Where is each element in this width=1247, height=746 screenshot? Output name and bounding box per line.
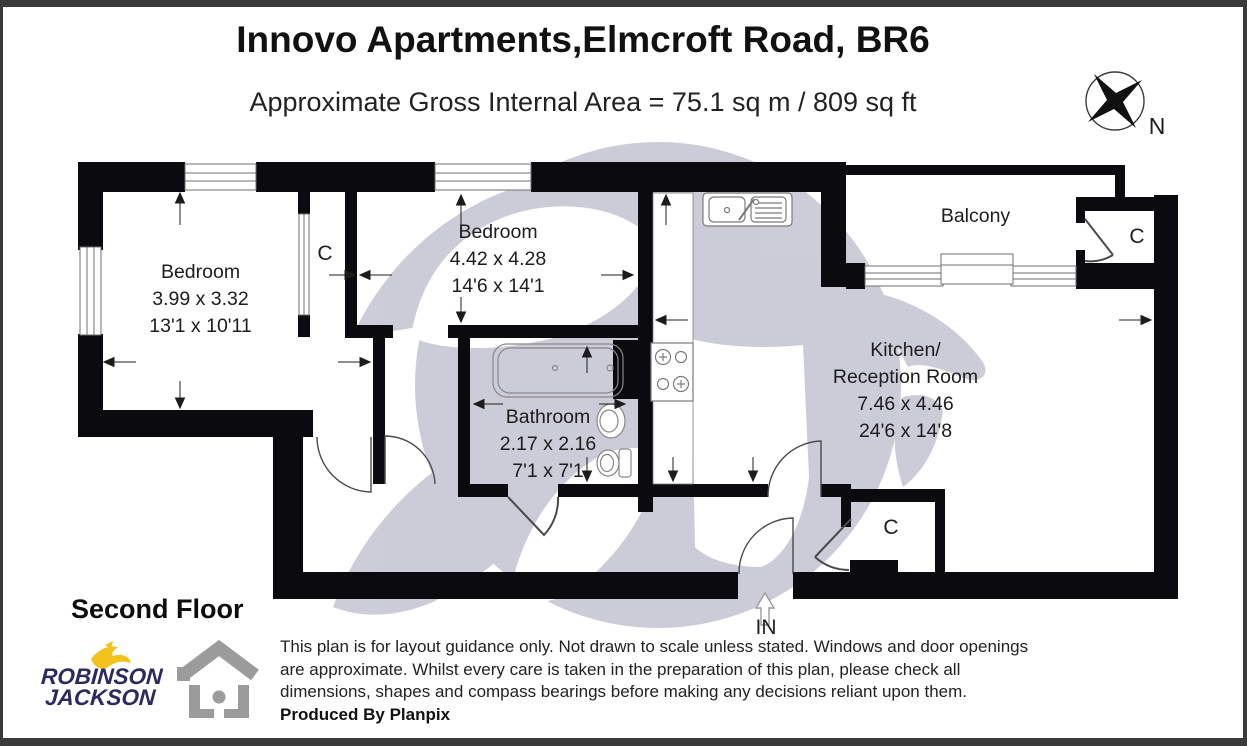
page-title: Innovo Apartments,Elmcroft Road, BR6 bbox=[3, 19, 1163, 61]
closet-label-2: C bbox=[1120, 225, 1154, 249]
room-label-balcony: Balcony bbox=[908, 203, 1043, 230]
planpix-house-icon bbox=[177, 648, 255, 718]
room-label-bedroom2: Bedroom 4.42 x 4.28 14'6 x 14'1 bbox=[408, 219, 588, 300]
room-label-bathroom: Bathroom 2.17 x 2.16 7'1 x 7'1 bbox=[458, 404, 638, 485]
produced-by: Produced By Planpix bbox=[280, 704, 1090, 727]
room-label-bedroom1: Bedroom 3.99 x 3.32 13'1 x 10'11 bbox=[113, 259, 288, 340]
bedroom1-door bbox=[317, 437, 371, 492]
agency-logo-line2: JACKSON bbox=[30, 688, 171, 709]
disclaimer-line: are approximate. Whilst every care is ta… bbox=[280, 659, 1090, 682]
disclaimer-line: dimensions, shapes and compass bearings … bbox=[280, 681, 1090, 704]
page-subtitle: Approximate Gross Internal Area = 75.1 s… bbox=[3, 87, 1163, 118]
disclaimer-line: This plan is for layout guidance only. N… bbox=[280, 636, 1090, 659]
closet-label-1: C bbox=[308, 242, 342, 266]
compass-north-label: N bbox=[1141, 113, 1173, 140]
floorplan-page: Innovo Apartments,Elmcroft Road, BR6 App… bbox=[0, 0, 1247, 746]
agency-logo: ROBINSON JACKSON bbox=[30, 667, 173, 708]
floor-name: Second Floor bbox=[71, 594, 244, 625]
room-label-kitchen-reception: Kitchen/ Reception Room 7.46 x 4.46 24'6… bbox=[798, 337, 1013, 445]
closet2-door bbox=[1085, 219, 1113, 261]
disclaimer-text: This plan is for layout guidance only. N… bbox=[280, 636, 1090, 726]
closet-label-3: C bbox=[874, 516, 908, 540]
